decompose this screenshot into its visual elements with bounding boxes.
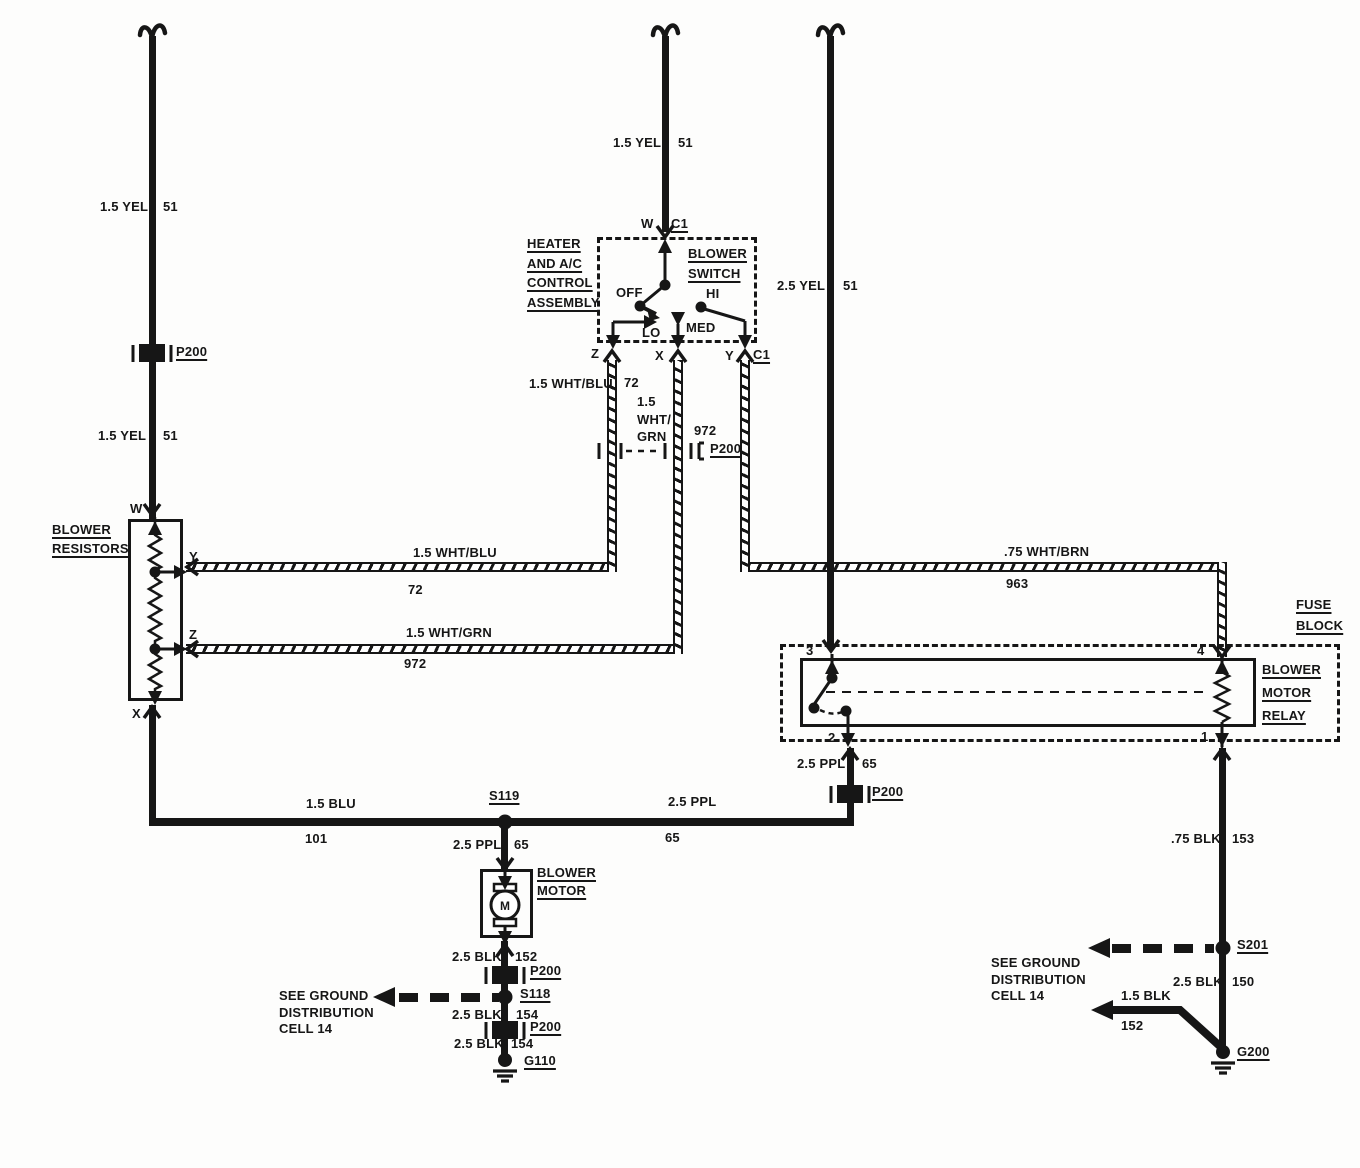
blower-motor-relay-label: BLOWER MOTOR RELAY bbox=[1262, 658, 1321, 727]
blower-motor-label: BLOWER MOTOR bbox=[537, 864, 596, 900]
connector-label-p200: P200 bbox=[530, 964, 561, 977]
fuse-block-label: FUSE BLOCK bbox=[1296, 594, 1343, 636]
switch-terminal-w: W bbox=[641, 217, 653, 230]
switch-pos-off: OFF bbox=[616, 286, 643, 299]
wire-label: 1.5 YEL bbox=[98, 429, 146, 442]
switch-pos-lo: LO bbox=[642, 326, 660, 339]
circuit-label: 65 bbox=[665, 831, 680, 844]
wire-label: 1.5 WHT/BLU bbox=[413, 546, 497, 559]
wire-label: 2.5 YEL bbox=[777, 279, 825, 292]
circuit-label: 150 bbox=[1232, 975, 1254, 988]
connector-label-p200: P200 bbox=[710, 442, 741, 455]
splice-label-s118: S118 bbox=[520, 987, 550, 1000]
blower-switch-label: BLOWER SWITCH bbox=[688, 244, 747, 284]
heater-control-label: HEATER AND A/C CONTROL ASSEMBLY bbox=[527, 234, 600, 312]
connector-label-p200: P200 bbox=[872, 785, 903, 798]
circuit-label: 51 bbox=[163, 200, 178, 213]
wire-label: 1.5 BLK bbox=[1121, 989, 1171, 1002]
resistor-terminal-y: Y bbox=[189, 550, 198, 563]
blower-resistors-label: BLOWER RESISTORS bbox=[52, 520, 129, 558]
circuit-label: 51 bbox=[163, 429, 178, 442]
wire-label: 2.5 PPL bbox=[797, 757, 845, 770]
circuit-label: 72 bbox=[408, 583, 423, 596]
offpage-hook-icons bbox=[140, 26, 843, 38]
circuit-label: 154 bbox=[511, 1037, 533, 1050]
circuit-label: 972 bbox=[694, 424, 716, 437]
wire-label: 2.5 BLK bbox=[452, 1008, 502, 1021]
switch-pos-hi: HI bbox=[706, 287, 719, 300]
ground-g200-icon bbox=[1211, 1045, 1235, 1073]
wire-label: 2.5 BLK bbox=[454, 1037, 504, 1050]
relay-terminal-2: 2 bbox=[828, 731, 835, 744]
switch-pos-med: MED bbox=[686, 321, 716, 334]
wire-label: 1.5 WHT/ GRN bbox=[637, 393, 671, 446]
wire-label: 2.5 PPL bbox=[453, 838, 501, 851]
circuit-label: 153 bbox=[1232, 832, 1254, 845]
ground-label-g110: G110 bbox=[524, 1054, 556, 1067]
relay-terminal-3: 3 bbox=[806, 644, 813, 657]
circuit-label: 101 bbox=[305, 832, 327, 845]
ground-ref-right: SEE GROUND DISTRIBUTION CELL 14 bbox=[991, 955, 1086, 1005]
splice-dots bbox=[498, 815, 1231, 1005]
switch-connector-c1: C1 bbox=[671, 217, 688, 230]
circuit-label: 51 bbox=[678, 136, 693, 149]
circuit-label: 65 bbox=[514, 838, 529, 851]
resistor-terminal-x: X bbox=[132, 707, 141, 720]
switch-terminal-y: Y bbox=[725, 349, 734, 362]
wire-label: 1.5 YEL bbox=[100, 200, 148, 213]
resistor-terminal-w: W bbox=[130, 502, 142, 515]
wire-label: 2.5 BLK bbox=[1173, 975, 1223, 988]
circuit-label: 152 bbox=[515, 950, 537, 963]
circuit-label: 152 bbox=[1121, 1019, 1143, 1032]
splice-label-s201: S201 bbox=[1237, 938, 1268, 951]
wire-label: .75 BLK bbox=[1171, 832, 1221, 845]
splice-label-s119: S119 bbox=[489, 789, 519, 802]
circuit-label: 51 bbox=[843, 279, 858, 292]
wire-label: 1.5 BLU bbox=[306, 797, 356, 810]
switch-connector-c1-bottom: C1 bbox=[753, 348, 770, 361]
wire-label: 2.5 BLK bbox=[452, 950, 502, 963]
switch-terminal-z: Z bbox=[591, 347, 599, 360]
relay-terminal-1: 1 bbox=[1201, 730, 1208, 743]
resistor-terminal-z: Z bbox=[189, 628, 197, 641]
blower-motor-relay-contacts bbox=[809, 654, 1230, 747]
ground-ref-left: SEE GROUND DISTRIBUTION CELL 14 bbox=[279, 988, 374, 1038]
connector-label-p200: P200 bbox=[530, 1020, 561, 1033]
wire-label: 1.5 YEL bbox=[613, 136, 661, 149]
ground-g110-icon bbox=[493, 1053, 517, 1081]
terminal-fork-icons bbox=[144, 226, 1230, 956]
circuit-label: 65 bbox=[862, 757, 877, 770]
relay-terminal-4: 4 bbox=[1197, 644, 1204, 657]
wire-label: 1.5 WHT/GRN bbox=[406, 626, 492, 639]
connector-label-p200: P200 bbox=[176, 345, 207, 358]
wire-label: 1.5 WHT/BLU bbox=[529, 377, 613, 390]
motor-m-letter: M bbox=[500, 899, 510, 913]
blower-resistor-elements bbox=[148, 517, 187, 705]
ground-label-g200: G200 bbox=[1237, 1045, 1270, 1058]
circuit-label: 963 bbox=[1006, 577, 1028, 590]
wire-label: 2.5 PPL bbox=[668, 795, 716, 808]
wire-label: .75 WHT/BRN bbox=[1004, 545, 1089, 558]
circuit-label: 972 bbox=[404, 657, 426, 670]
circuit-label: 72 bbox=[624, 376, 639, 389]
blower-motor-symbol: M bbox=[491, 869, 519, 945]
wiring-diagram: M bbox=[0, 0, 1360, 1168]
switch-terminal-x: X bbox=[655, 349, 664, 362]
